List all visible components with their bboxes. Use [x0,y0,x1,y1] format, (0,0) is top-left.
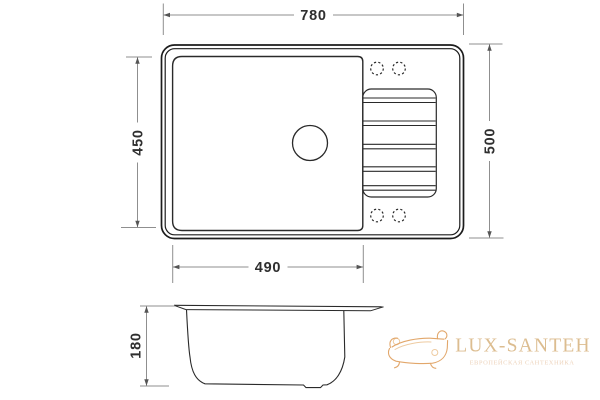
dimension-bowl-height: 180 [129,306,176,386]
sink-outer-edge [162,45,464,239]
sink-inner-edge [165,49,460,235]
tap-hole-top-left [371,62,384,75]
arrowhead [357,265,364,270]
arrowhead [144,379,148,386]
watermark: LUX-SANTEH ЕВРОПЕЙСКАЯ САНТЕХНИКА [388,331,590,368]
arrowhead [135,57,139,64]
watermark-brand-text: LUX-SANTEH [455,336,590,357]
dim-label-180: 180 [129,332,145,359]
tap-hole-markings [371,62,406,222]
arrowhead [487,231,491,238]
arrowhead [135,221,139,228]
drainboard [363,89,437,197]
dim-label-490: 490 [255,260,282,276]
arrowhead [173,265,180,270]
drawing-svg: 780 450 500 490 [0,0,600,400]
sink-bowl [173,57,363,231]
rim-top-line [174,305,384,307]
dimension-overall-width: 780 [163,4,463,36]
watermark-tagline-text: ЕВРОПЕЙСКАЯ САНТЕХНИКА [470,359,575,367]
dimension-bowl-depth: 450 [121,57,156,228]
tap-hole-bottom-right [393,209,406,222]
tap-hole-top-right [393,62,406,75]
bowl-profile [187,310,345,388]
rim-left-cap [174,305,186,309]
drain-hole [293,126,328,161]
dim-label-780: 780 [300,8,327,24]
top-view [162,45,464,239]
dim-label-450: 450 [131,129,147,156]
dim-label-500: 500 [483,128,499,155]
dimension-bowl-width: 490 [173,245,364,283]
arrowhead [457,13,464,18]
arrowhead [487,44,491,51]
dimension-overall-depth: 500 [469,44,504,238]
rim-right-cap [371,307,384,311]
bathtub-icon [388,331,447,368]
rim-bottom-line [186,310,371,311]
drainboard-grooves [363,98,435,190]
tap-hole-bottom-left [371,209,384,222]
arrowhead [164,13,171,18]
section-view [174,305,384,387]
sink-technical-drawing: 780 450 500 490 [0,0,600,400]
arrowhead [144,306,148,313]
